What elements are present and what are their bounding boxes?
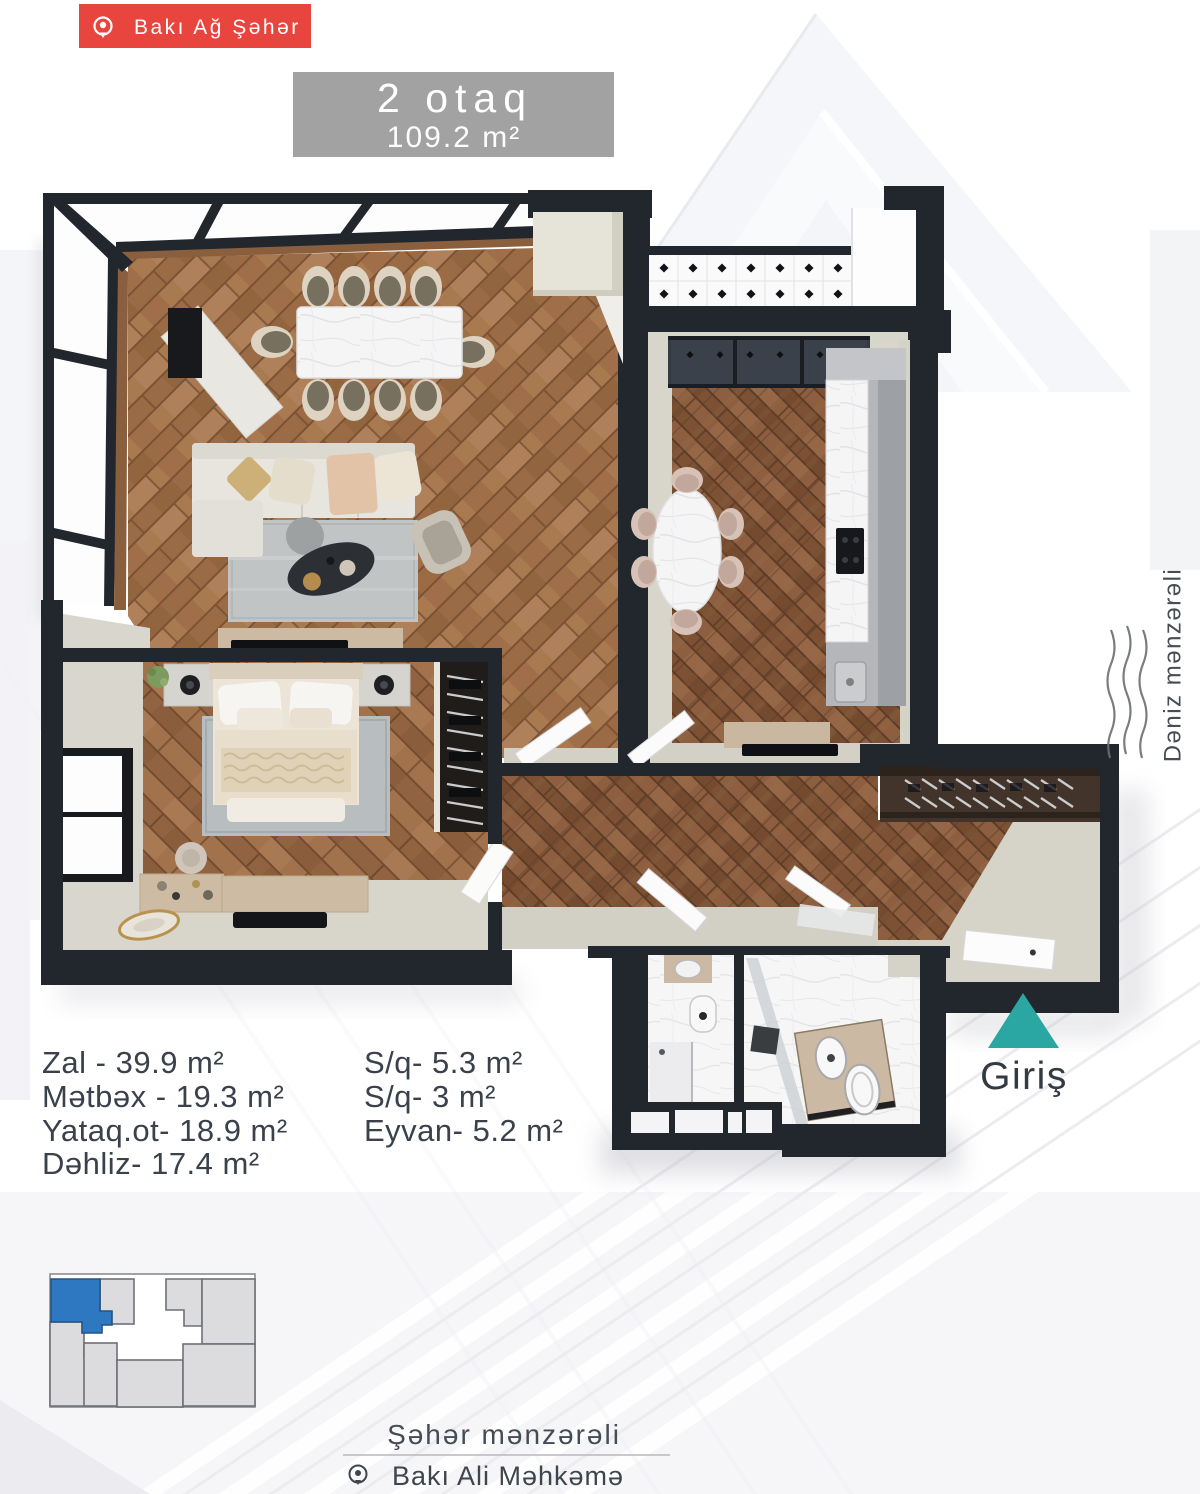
svg-text:109.2 m²: 109.2 m² [387,121,521,154]
svg-text:Bakı Ali Məhkəmə: Bakı Ali Məhkəmə [392,1461,624,1491]
svg-text:Mətbəx - 19.3 m²: Mətbəx - 19.3 m² [42,1079,284,1114]
svg-text:Giriş: Giriş [980,1055,1068,1098]
svg-text:Eyvan- 5.2 m²: Eyvan- 5.2 m² [364,1113,563,1148]
svg-text:Yataq.ot- 18.9 m²: Yataq.ot- 18.9 m² [42,1113,288,1148]
svg-text:Dəhliz- 17.4 m²: Dəhliz- 17.4 m² [42,1146,260,1181]
svg-text:Şəhər mənzərəli: Şəhər mənzərəli [387,1419,621,1450]
svg-text:Zal - 39.9 m²: Zal - 39.9 m² [42,1045,224,1080]
svg-text:Bakı Ağ Şəhər: Bakı Ağ Şəhər [134,16,301,39]
svg-text:2 otaq: 2 otaq [377,75,533,121]
svg-text:S/q- 3 m²: S/q- 3 m² [364,1079,496,1114]
svg-text:Dəniz mənzərəli: Dəniz mənzərəli [1159,568,1186,763]
svg-text:S/q- 5.3 m²: S/q- 5.3 m² [364,1045,523,1080]
